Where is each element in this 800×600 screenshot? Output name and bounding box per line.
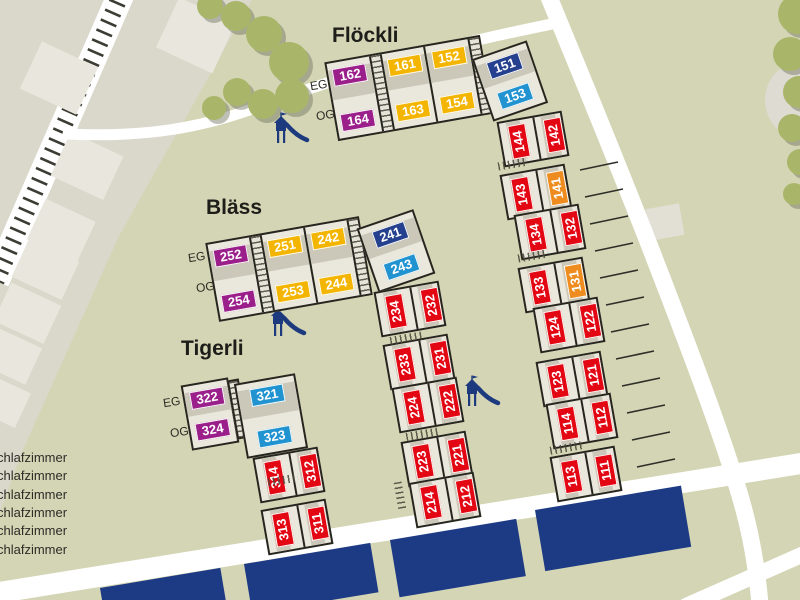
house-title-tigerli: Tigerli [181,337,244,361]
unit-252-label[interactable]: 252 [213,244,249,268]
unit-242-label[interactable]: 242 [310,227,346,251]
legend-item: chlafzimmer [0,468,67,483]
unit-233-label[interactable]: 233 [393,346,417,382]
unit-143-label[interactable]: 143 [510,176,534,212]
unit-151-label[interactable]: 151 [486,52,524,80]
unit-223-label[interactable]: 223 [411,443,435,479]
southeast-road [686,553,800,600]
playground-icon [465,376,498,407]
unit-133-label[interactable]: 133 [528,269,552,305]
unit-244-label[interactable]: 244 [318,272,354,296]
unit-222-label[interactable]: 222 [437,383,461,419]
floor-label-eg: EG [162,394,181,411]
unit-164-label[interactable]: 164 [340,109,376,133]
unit-141-label[interactable]: 141 [545,170,569,206]
unit-132-label[interactable]: 132 [559,210,583,246]
house-title-blaess: Bläss [206,196,262,220]
unit-153-label[interactable]: 153 [496,82,534,110]
unit-112-label[interactable]: 112 [590,400,613,436]
unit-241-label[interactable]: 241 [372,221,410,249]
unit-321-label[interactable]: 321 [249,384,285,408]
unit-163-label[interactable]: 163 [395,99,431,123]
unit-221-label[interactable]: 221 [446,437,470,473]
unit-122-label[interactable]: 122 [578,303,602,339]
unit-114-label[interactable]: 114 [556,406,579,442]
unit-113-label[interactable]: 113 [560,459,583,495]
unit-324-label[interactable]: 324 [195,418,231,442]
unit-212-label[interactable]: 212 [454,478,478,514]
unit-162-label[interactable]: 162 [332,63,368,87]
unit-234-label[interactable]: 234 [384,293,408,329]
unit-254-label[interactable]: 254 [221,289,257,313]
unit-231-label[interactable]: 231 [428,340,452,376]
unit-144-label[interactable]: 144 [507,123,531,159]
floor-label-eg: EG [309,77,328,94]
legend-item: chlafzimmer [0,542,67,557]
unit-253-label[interactable]: 253 [275,280,311,304]
unit-214-label[interactable]: 214 [419,484,443,520]
house-title-floeckli: Flöckli [332,24,399,48]
unit-224-label[interactable]: 224 [402,389,426,425]
building-block-tigerli-east: 321 323 [234,373,308,459]
planned-buildings [100,486,691,600]
unit-134-label[interactable]: 134 [524,216,548,252]
unit-323-label[interactable]: 323 [256,425,292,449]
unit-142-label[interactable]: 142 [542,117,566,153]
floor-label-eg: EG [187,249,206,266]
unit-111-label[interactable]: 111 [594,453,617,488]
unit-121-label[interactable]: 121 [581,357,605,393]
unit-322-label[interactable]: 322 [189,386,225,410]
legend-item: chlafzimmer [0,450,67,465]
unit-161-label[interactable]: 161 [387,54,423,78]
unit-131-label[interactable]: 131 [563,263,587,299]
unit-311-label[interactable]: 311 [306,506,329,542]
unit-154-label[interactable]: 154 [439,91,475,115]
unit-313-label[interactable]: 313 [271,511,295,547]
unit-124-label[interactable]: 124 [543,309,567,345]
unit-243-label[interactable]: 243 [383,253,421,281]
unit-123-label[interactable]: 123 [546,363,570,399]
playground-icon [274,113,307,144]
unit-251-label[interactable]: 251 [267,235,303,259]
unit-232-label[interactable]: 232 [419,287,443,323]
unit-152-label[interactable]: 152 [431,46,467,70]
unit-column: 321 323 [236,376,306,457]
floor-label-og: OG [169,424,190,441]
site-plan: Flöckli Bläss Tigerli EG OG EG OG EG OG … [0,0,800,600]
legend-item: chlafzimmer [0,523,67,538]
unit-312-label[interactable]: 312 [298,453,322,489]
legend-item: chlafzimmer [0,487,67,502]
legend-item: chlafzimmer [0,505,67,520]
